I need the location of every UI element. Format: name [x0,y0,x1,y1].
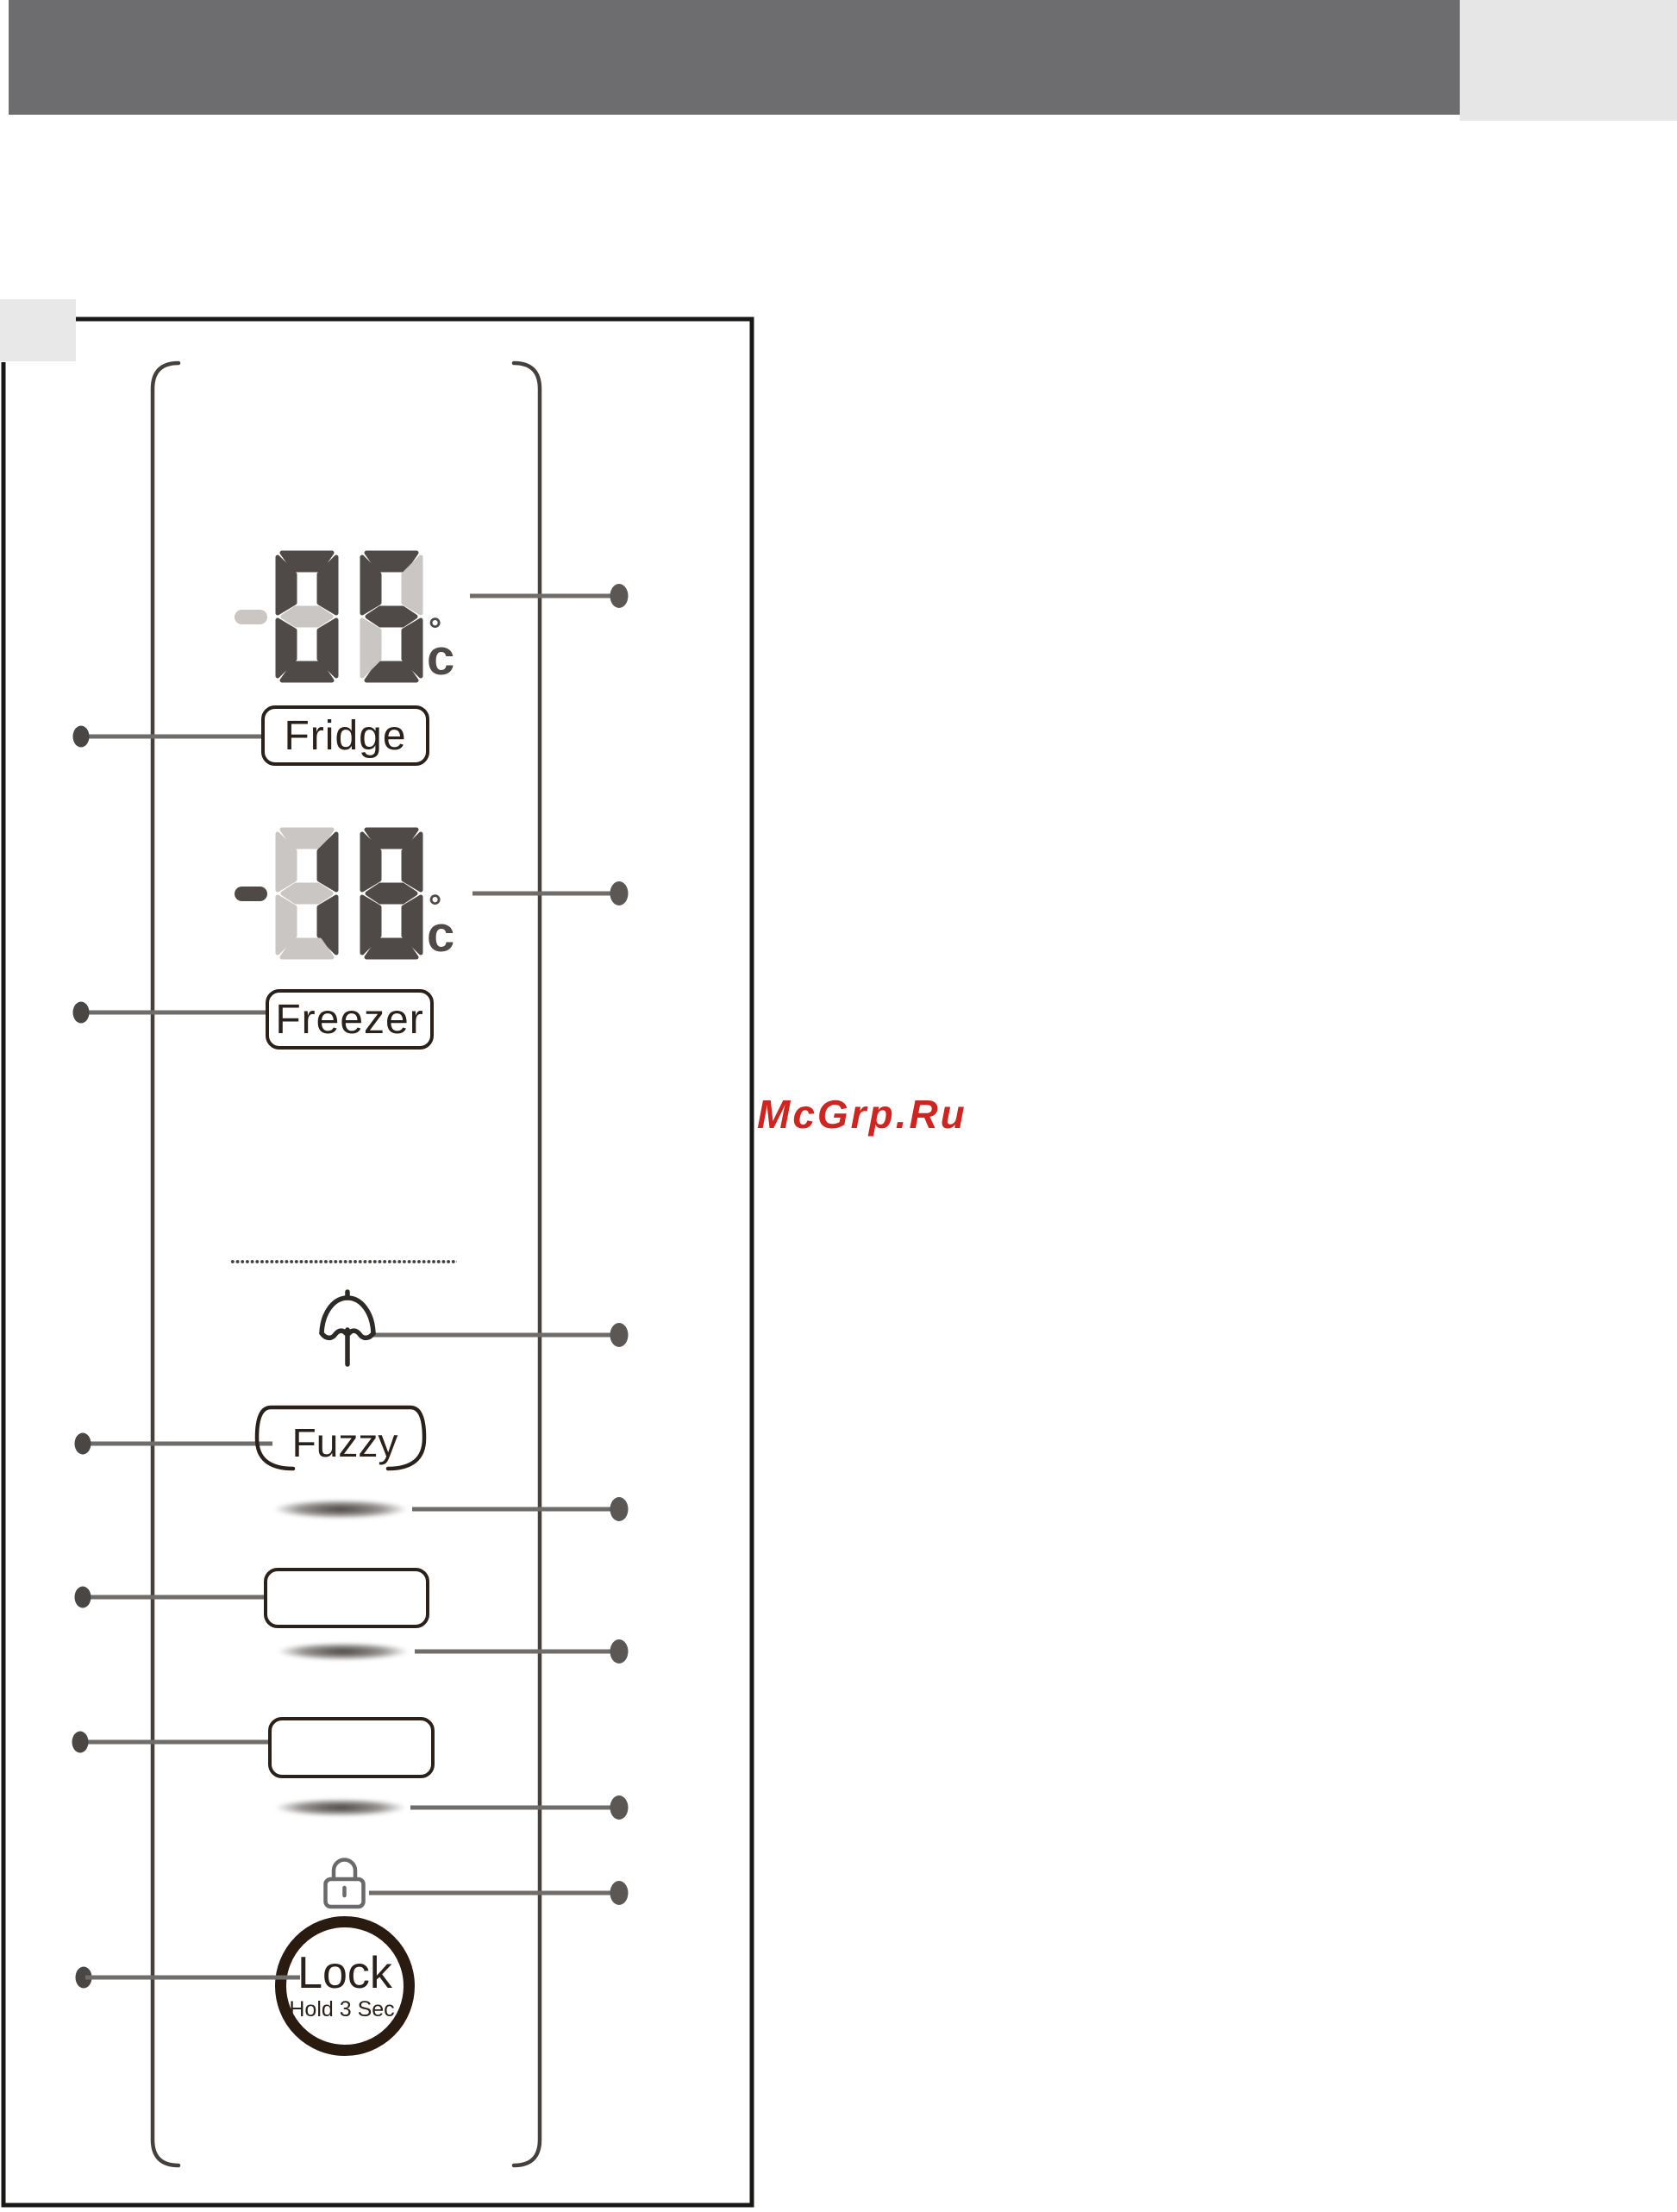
fridge-button-label: Fridge [284,712,406,760]
panel-outline-left [153,363,178,2165]
umbrella-icon [322,1292,373,1364]
celsius-letter: c [427,633,454,683]
callout-lines-right [369,596,618,1893]
watermark: McGrp.Ru [757,1091,967,1137]
callout-dot [75,1587,91,1608]
padlock-icon [326,1860,364,1907]
header-bar [9,0,1460,115]
fuzzy-button-label: Fuzzy [263,1419,427,1466]
lock-button-sublabel: Hold 3 Sec. [263,1997,427,2022]
callout-dot [72,1732,89,1753]
callout-dot [73,1002,90,1024]
callout-dot [610,1881,629,1905]
callout-dot [610,1639,629,1664]
seven-segment-digit [362,830,421,957]
callout-dot [610,1497,629,1521]
corner-marker-square [0,299,76,361]
manual-page: Fridge Freezer Fuzzy ° c ° c Lock Hold 3… [0,0,1677,2212]
redacted-label-2 [266,1641,421,1662]
dotted-separator [230,1258,457,1265]
freezer-button: Freezer [266,989,434,1050]
callout-dot [73,726,90,748]
celsius-letter: c [427,910,454,960]
redacted-label-1 [261,1498,420,1520]
callout-dot [75,1433,91,1455]
freezer-button-label: Freezer [275,996,423,1043]
seven-segment-digit [278,830,336,957]
freezer-display-unit: ° c [429,889,472,967]
seven-segment-digit [362,553,421,680]
callout-dot [610,1795,629,1820]
display-minus-sign [235,887,267,901]
callout-dot [610,584,629,608]
callout-dot [610,881,629,905]
callout-lines-left [81,736,300,1977]
header-accent-block [1460,0,1677,121]
freezer-temperature-display [235,830,421,957]
lock-button-label: Lock [267,1947,422,1999]
display-minus-sign [235,610,267,624]
seven-segment-digit [278,553,336,680]
redacted-label-3 [263,1797,418,1818]
unlabeled-button-1 [264,1568,429,1628]
fridge-button: Fridge [261,705,429,766]
callout-dot [610,1323,629,1347]
fridge-temperature-display [235,553,421,680]
fridge-display-unit: ° c [429,612,472,690]
unlabeled-button-2 [268,1717,435,1778]
